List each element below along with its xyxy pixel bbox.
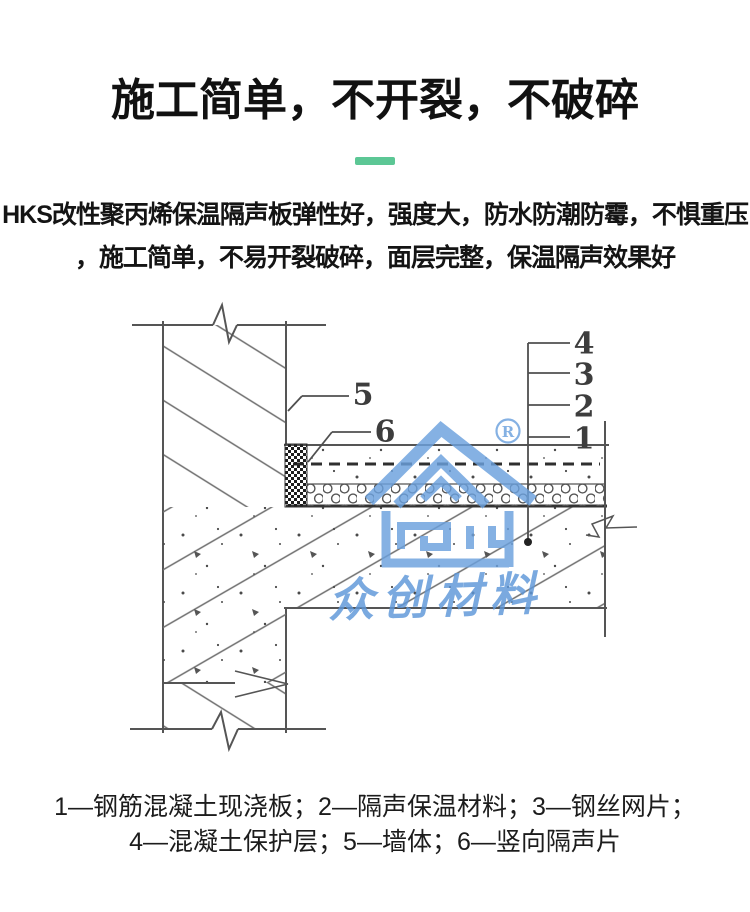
legend-line-1: 1—钢筋混凝土现浇板；2—隔声保温材料；3—钢丝网片；: [0, 790, 750, 825]
registered-icon: R: [497, 420, 520, 443]
callout-number-6: 6: [375, 415, 396, 450]
callout-leader-5: [288, 396, 349, 411]
callout-number-4: 4: [574, 327, 595, 362]
vertical-sound-strip: [285, 444, 307, 507]
callout-number-3: 3: [574, 358, 595, 393]
watermark-text: 众创材料: [327, 567, 545, 627]
callout-number-1: 1: [574, 422, 595, 457]
promo-page: 施工简单，不开裂，不破碎 HKS改性聚丙烯保温隔声板弹性好，强度大，防水防潮防霉…: [0, 0, 750, 912]
construction-detail-diagram: 4 3 2 1 5 6 R: [0, 0, 750, 912]
callout-number-5: 5: [353, 378, 374, 413]
callout-number-2: 2: [574, 390, 595, 425]
legend-caption: 1—钢筋混凝土现浇板；2—隔声保温材料；3—钢丝网片； 4—混凝土保护层；5—墙…: [0, 790, 750, 860]
legend-line-2: 4—混凝土保护层；5—墙体；6—竖向隔声片: [0, 825, 750, 860]
svg-text:R: R: [502, 423, 515, 441]
